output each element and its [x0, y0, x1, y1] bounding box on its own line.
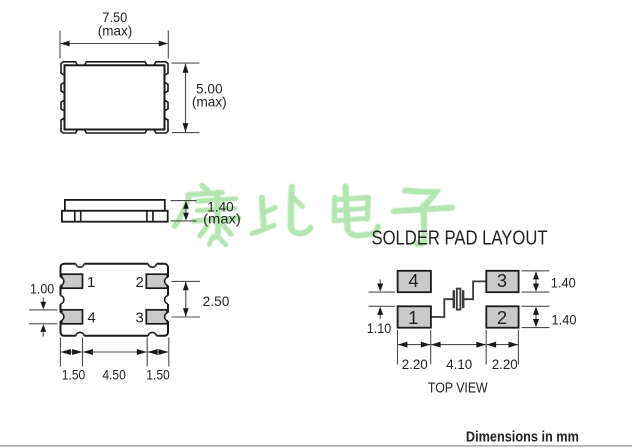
- svg-text:2: 2: [497, 307, 507, 328]
- svg-text:3: 3: [135, 311, 143, 327]
- svg-text:2.20: 2.20: [492, 357, 518, 373]
- svg-text:1.10: 1.10: [367, 321, 392, 337]
- svg-text:4.10: 4.10: [446, 357, 472, 373]
- svg-text:4: 4: [408, 270, 418, 291]
- svg-text:4: 4: [87, 311, 95, 327]
- svg-text:1: 1: [87, 275, 95, 291]
- svg-text:Dimensions in mm: Dimensions in mm: [466, 429, 579, 446]
- svg-text:4.50: 4.50: [102, 367, 126, 383]
- svg-text:2: 2: [135, 275, 143, 291]
- svg-text:1.50: 1.50: [146, 367, 170, 383]
- svg-text:1.40: 1.40: [551, 276, 576, 292]
- svg-text:1.50: 1.50: [62, 367, 86, 383]
- svg-text:SOLDER PAD LAYOUT: SOLDER PAD LAYOUT: [372, 226, 548, 249]
- svg-text:(max): (max): [203, 211, 241, 227]
- svg-text:1: 1: [408, 307, 418, 328]
- svg-text:TOP VIEW: TOP VIEW: [428, 381, 488, 397]
- svg-text:2.50: 2.50: [203, 294, 230, 310]
- svg-text:(max): (max): [98, 23, 133, 39]
- svg-text:2.20: 2.20: [402, 357, 428, 373]
- svg-text:3: 3: [497, 270, 507, 291]
- svg-text:1.40: 1.40: [552, 312, 577, 328]
- svg-text:1.00: 1.00: [30, 282, 54, 298]
- svg-text:(max): (max): [192, 95, 227, 111]
